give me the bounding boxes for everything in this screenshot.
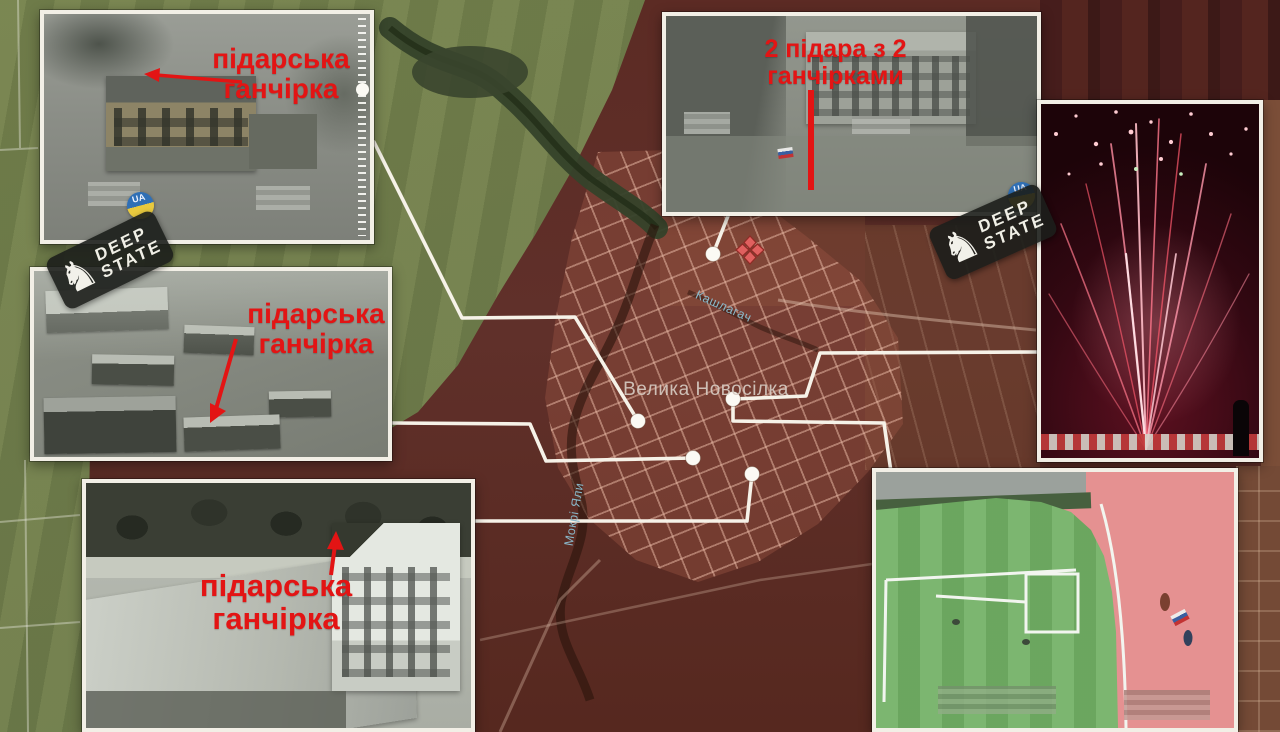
lake [412, 46, 528, 98]
map-marker-dot [686, 451, 701, 466]
river-label-diagonal: Кашлагач [693, 288, 753, 325]
firework-sparks [1054, 110, 1248, 176]
person-silhouette [1233, 400, 1249, 456]
firework-streaks [1041, 104, 1259, 458]
connector-line [733, 399, 891, 472]
town-label: Велика Новосілка [623, 379, 789, 400]
road [500, 560, 600, 732]
inset-photo-top-center: 2 підара з 2 ганчірками [662, 12, 1041, 216]
annotation-pointer-line [808, 90, 814, 190]
annotation-arrow [44, 14, 370, 240]
annotation-arrow [86, 483, 471, 728]
unit-marker-icon [736, 236, 764, 264]
map-marker-dot [706, 247, 721, 262]
censor-blur [684, 112, 730, 134]
caption-line: ганчірками [758, 63, 913, 90]
road [480, 560, 900, 640]
inset-photo-top-left: підарська ганчірка [40, 10, 374, 244]
photo-checkered-strip [1041, 434, 1259, 450]
inset-photo-fireworks [1037, 100, 1263, 462]
inset-photo-bottom-left: підарська ганчірка [82, 479, 475, 732]
caption-line: 2 підара з 2 [758, 36, 913, 63]
map-marker-dot [631, 414, 646, 429]
censor-blur [852, 116, 910, 134]
map-marker-dots [631, 247, 760, 482]
connector-line [474, 474, 752, 521]
russian-flag [777, 147, 793, 159]
censor-blur [938, 686, 1056, 714]
map-marker-dot [745, 467, 760, 482]
photo-rubble-floor [666, 136, 1037, 212]
inset-photo-stadium [872, 468, 1238, 732]
road [778, 300, 1036, 330]
river-mokri-yaly [560, 225, 655, 700]
annotation-caption: 2 підара з 2 ганчірками [758, 36, 913, 90]
connector-line [392, 423, 693, 461]
photo-dark-wall [966, 16, 1037, 146]
censor-blur [1124, 690, 1210, 720]
annotated-map-image: Велика Новосілка Мокрі Яли Кашлагач піда… [0, 0, 1280, 732]
